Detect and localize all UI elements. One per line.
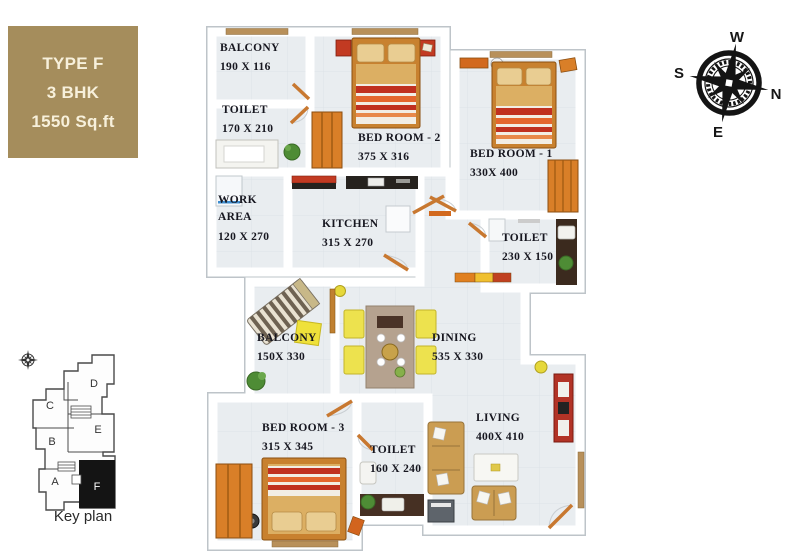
- room-dims: 170 X 210: [222, 121, 273, 138]
- room-name: LIVING: [476, 410, 524, 427]
- key-plan-unit-f: F: [94, 481, 101, 493]
- floor-plan-page: TYPE F 3 BHK 1550 Sq.ft: [0, 0, 800, 553]
- room-name: BED ROOM - 2: [358, 130, 441, 147]
- compass-rose-icon: W S N E: [663, 6, 800, 150]
- room-name: BED ROOM - 3: [262, 420, 345, 437]
- cabinet-strip-icon: [455, 273, 511, 282]
- bedroom1-wardrobe-icon: [548, 160, 578, 212]
- room-name: KITCHEN: [322, 216, 378, 233]
- key-plan-unit-d: D: [90, 378, 98, 390]
- room-name: DINING: [432, 330, 483, 347]
- room-dims: 230 X 150: [502, 249, 553, 266]
- room-name: BALCONY: [220, 40, 280, 57]
- room-dims: 400X 410: [476, 429, 524, 446]
- room-name: BED ROOM - 1: [470, 146, 553, 163]
- room-label-toilet-bottom: TOILET 160 X 240: [370, 442, 421, 479]
- room-label-work-area: WORK AREA 120 X 270: [218, 192, 272, 246]
- room-dims: 330X 400: [470, 165, 553, 182]
- room-dims: 375 X 316: [358, 149, 441, 166]
- key-plan: A B C D E F: [8, 342, 158, 512]
- compass-south-label: S: [674, 65, 684, 82]
- key-plan-unit-a: A: [51, 476, 59, 488]
- room-label-bedroom-1: BED ROOM - 1 330X 400: [470, 146, 553, 183]
- key-plan-caption: Key plan: [8, 508, 158, 525]
- room-label-bedroom-2: BED ROOM - 2 375 X 316: [358, 130, 441, 167]
- room-name: TOILET: [502, 230, 553, 247]
- bedroom3-wardrobe-icon: [216, 464, 252, 538]
- room-dims: 535 X 330: [432, 349, 483, 366]
- room-name: TOILET: [222, 102, 273, 119]
- bedroom2-wardrobe-icon: [312, 112, 342, 168]
- room-dims: 120 X 270: [218, 229, 272, 246]
- room-label-balcony-top: BALCONY 190 X 116: [220, 40, 280, 77]
- key-plan-compass-icon: [18, 350, 38, 370]
- compass-east-label: E: [713, 124, 723, 141]
- room-label-bedroom-3: BED ROOM - 3 315 X 345: [262, 420, 345, 457]
- room-dims: 315 X 345: [262, 439, 345, 456]
- compass-north-label: N: [771, 86, 782, 103]
- key-plan-unit-e: E: [94, 424, 101, 436]
- room-label-living: LIVING 400X 410: [476, 410, 524, 447]
- room-label-toilet-top: TOILET 170 X 210: [222, 102, 273, 139]
- room-name: WORK AREA: [218, 192, 272, 227]
- bedroom3-bed-icon: [245, 458, 364, 540]
- key-plan-unit-c: C: [46, 400, 54, 412]
- room-dims: 150X 330: [257, 349, 317, 366]
- room-dims: 315 X 270: [322, 235, 378, 252]
- room-label-balcony-mid: BALCONY 150X 330: [257, 330, 317, 367]
- key-plan-outline: [33, 355, 115, 510]
- key-plan-unit-b: B: [48, 436, 55, 448]
- room-name: BALCONY: [257, 330, 317, 347]
- room-label-toilet-mid: TOILET 230 X 150: [502, 230, 553, 267]
- room-label-kitchen: KITCHEN 315 X 270: [322, 216, 378, 253]
- room-name: TOILET: [370, 442, 421, 459]
- room-label-dining: DINING 535 X 330: [432, 330, 483, 367]
- room-dims: 190 X 116: [220, 59, 280, 76]
- compass-west-label: W: [730, 29, 745, 46]
- room-dims: 160 X 240: [370, 461, 421, 478]
